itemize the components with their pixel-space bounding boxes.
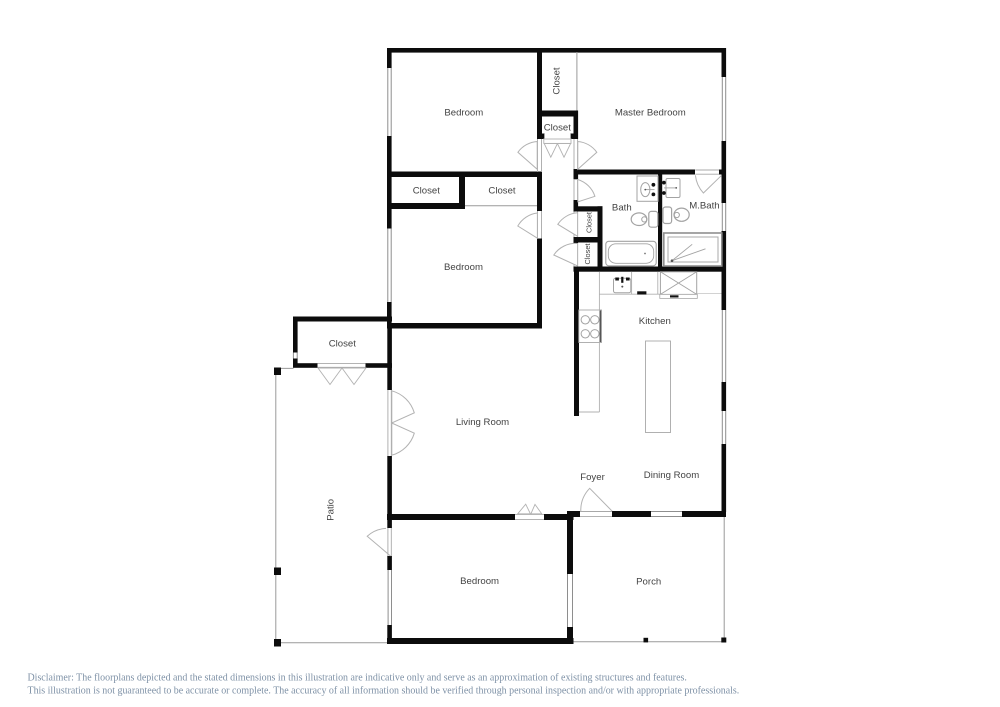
svg-text:Bedroom: Bedroom xyxy=(444,262,483,273)
svg-text:This illustration is not guara: This illustration is not guaranteed to b… xyxy=(28,685,740,696)
svg-text:Closet: Closet xyxy=(583,244,592,265)
svg-text:Closet: Closet xyxy=(413,186,441,197)
svg-text:Bath: Bath xyxy=(612,203,632,214)
svg-text:Bedroom: Bedroom xyxy=(460,576,499,587)
svg-text:Patio: Patio xyxy=(326,499,337,521)
svg-text:Disclaimer: The floorplans dep: Disclaimer: The floorplans depicted and … xyxy=(28,672,687,683)
svg-text:Closet: Closet xyxy=(329,338,357,349)
svg-text:Closet: Closet xyxy=(488,186,516,197)
svg-text:Dining Room: Dining Room xyxy=(644,470,699,481)
svg-text:Foyer: Foyer xyxy=(580,472,605,483)
svg-text:Closet: Closet xyxy=(585,212,594,233)
svg-text:Porch: Porch xyxy=(636,577,661,588)
svg-text:Bedroom: Bedroom xyxy=(444,107,483,118)
svg-text:Closet: Closet xyxy=(552,67,563,95)
svg-text:Kitchen: Kitchen xyxy=(639,316,671,327)
svg-text:M.Bath: M.Bath xyxy=(689,200,719,211)
svg-text:Living Room: Living Room xyxy=(456,417,509,428)
svg-text:Master Bedroom: Master Bedroom xyxy=(615,107,686,118)
svg-text:Closet: Closet xyxy=(544,122,572,133)
